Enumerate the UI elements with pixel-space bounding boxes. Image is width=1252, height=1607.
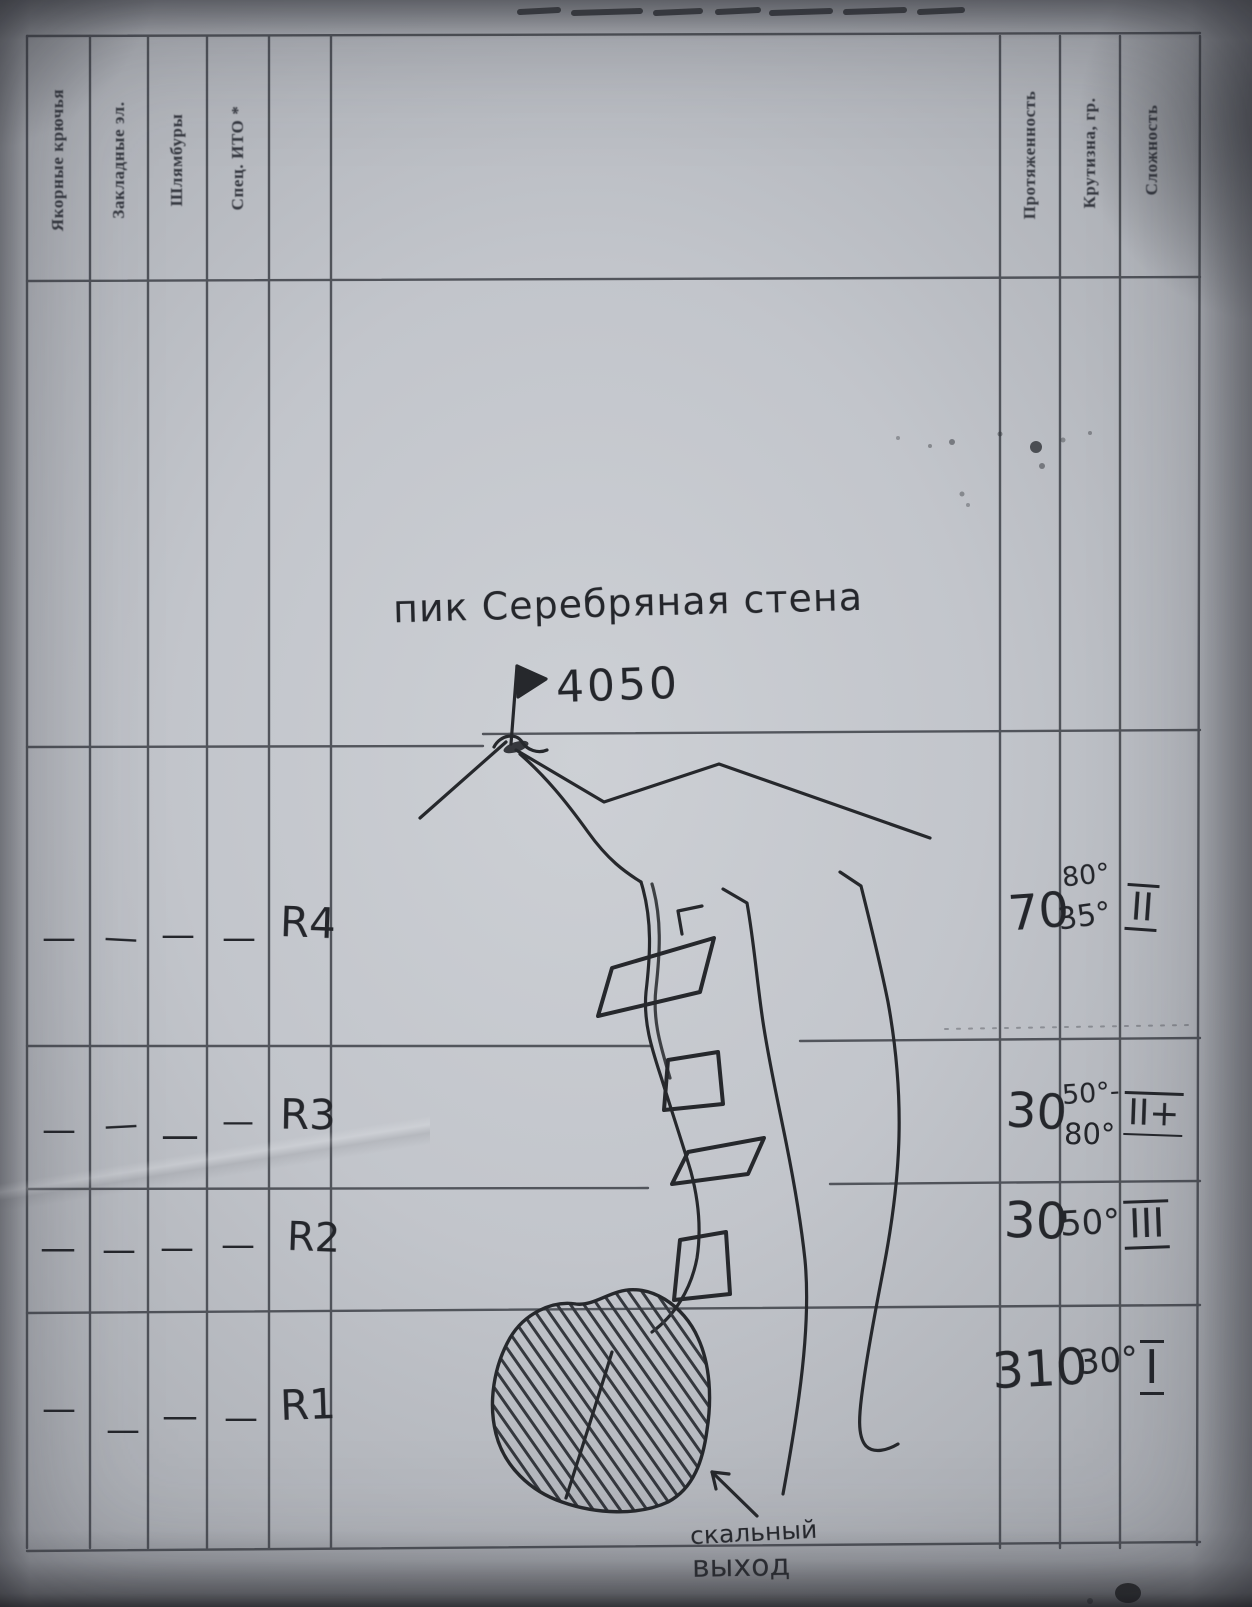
elevation-label: 4050 (555, 662, 680, 710)
pitch-label-r2: R2 (286, 1217, 341, 1259)
outcrop-arrow-icon (712, 1472, 757, 1516)
gear-dash: — (42, 1392, 76, 1426)
gear-dash: — (40, 1231, 76, 1267)
cell-steepness-r3-top: 50°- (1061, 1078, 1120, 1109)
pitch-label-r3: R3 (280, 1094, 337, 1137)
gear-dash: — (224, 1401, 258, 1435)
cell-length-r2: 30 (1003, 1195, 1068, 1247)
hand-drawn-route (420, 666, 930, 1516)
rock-outcrop (492, 1290, 709, 1512)
cell-steepness-r4-bottom: 35° (1056, 898, 1113, 935)
peak-title: пик Серебряная стена (393, 578, 864, 628)
gear-dash: — (222, 921, 256, 955)
cell-steepness-r2: 50° (1059, 1204, 1121, 1241)
summit-flag-icon (511, 666, 546, 744)
cell-difficulty-r1: I (1140, 1340, 1164, 1395)
route-line-from-summit (520, 754, 641, 882)
gully-line-right (723, 889, 807, 1494)
col-header-nuts: Закладные эл. (109, 101, 129, 218)
gear-dash: — (162, 1399, 198, 1435)
cell-difficulty-r2: III (1123, 1199, 1170, 1250)
rock-step-2 (664, 1052, 723, 1110)
cell-difficulty-r4: II (1124, 883, 1160, 932)
gear-dash: — (42, 921, 76, 955)
col-header-anchor-pitons: Якорные крючья (48, 89, 68, 231)
gear-dash: — (222, 1105, 254, 1137)
pitch-label-r4: R4 (279, 901, 336, 945)
cell-steepness-r4-top: 80° (1061, 860, 1111, 892)
col-header-special-aid: Спец. ИТО * (228, 106, 248, 211)
gear-dash: — (103, 920, 139, 956)
outcrop-label-line2: выход (692, 1551, 791, 1583)
cell-length-r3: 30 (1005, 1086, 1069, 1137)
ink-smudges (896, 431, 1141, 1604)
gear-dash: — (102, 1233, 136, 1267)
gully-line-left-double (652, 884, 670, 1078)
rib-line-right (840, 872, 899, 1450)
gear-dash: — (161, 1116, 199, 1154)
gear-dash: — (160, 1231, 194, 1265)
col-header-difficulty: Сложность (1142, 105, 1162, 196)
ridge-line-left (420, 742, 506, 818)
gear-dash: — (221, 1228, 255, 1262)
col-header-bolts: Шлямбуры (167, 114, 187, 207)
rock-step-3 (672, 1138, 764, 1184)
gear-dash: — (103, 1107, 139, 1143)
col-header-steepness: Крутизна, гр. (1080, 97, 1100, 208)
belay-bracket-mark (678, 906, 702, 934)
cell-steepness-r1: 30° (1077, 1342, 1139, 1380)
cell-difficulty-r3: II+ (1123, 1091, 1184, 1137)
cell-length-r1: 310 (991, 1342, 1089, 1397)
ridge-line-right (516, 750, 930, 838)
rock-step-4 (674, 1232, 730, 1300)
gear-dash: — (42, 1113, 76, 1147)
gear-dash: — (106, 1413, 140, 1447)
route-topo-photo: Якорные крючья Закладные эл. Шлямбуры Сп… (0, 0, 1252, 1607)
cell-steepness-r3-bottom: 80° (1064, 1120, 1115, 1149)
cropped-top-text (520, 10, 962, 13)
pitch-label-r1: R1 (279, 1383, 336, 1427)
gear-dash: — (161, 918, 195, 952)
col-header-length: Протяженность (1020, 91, 1040, 220)
outcrop-label-line1: скальный (689, 1517, 817, 1549)
